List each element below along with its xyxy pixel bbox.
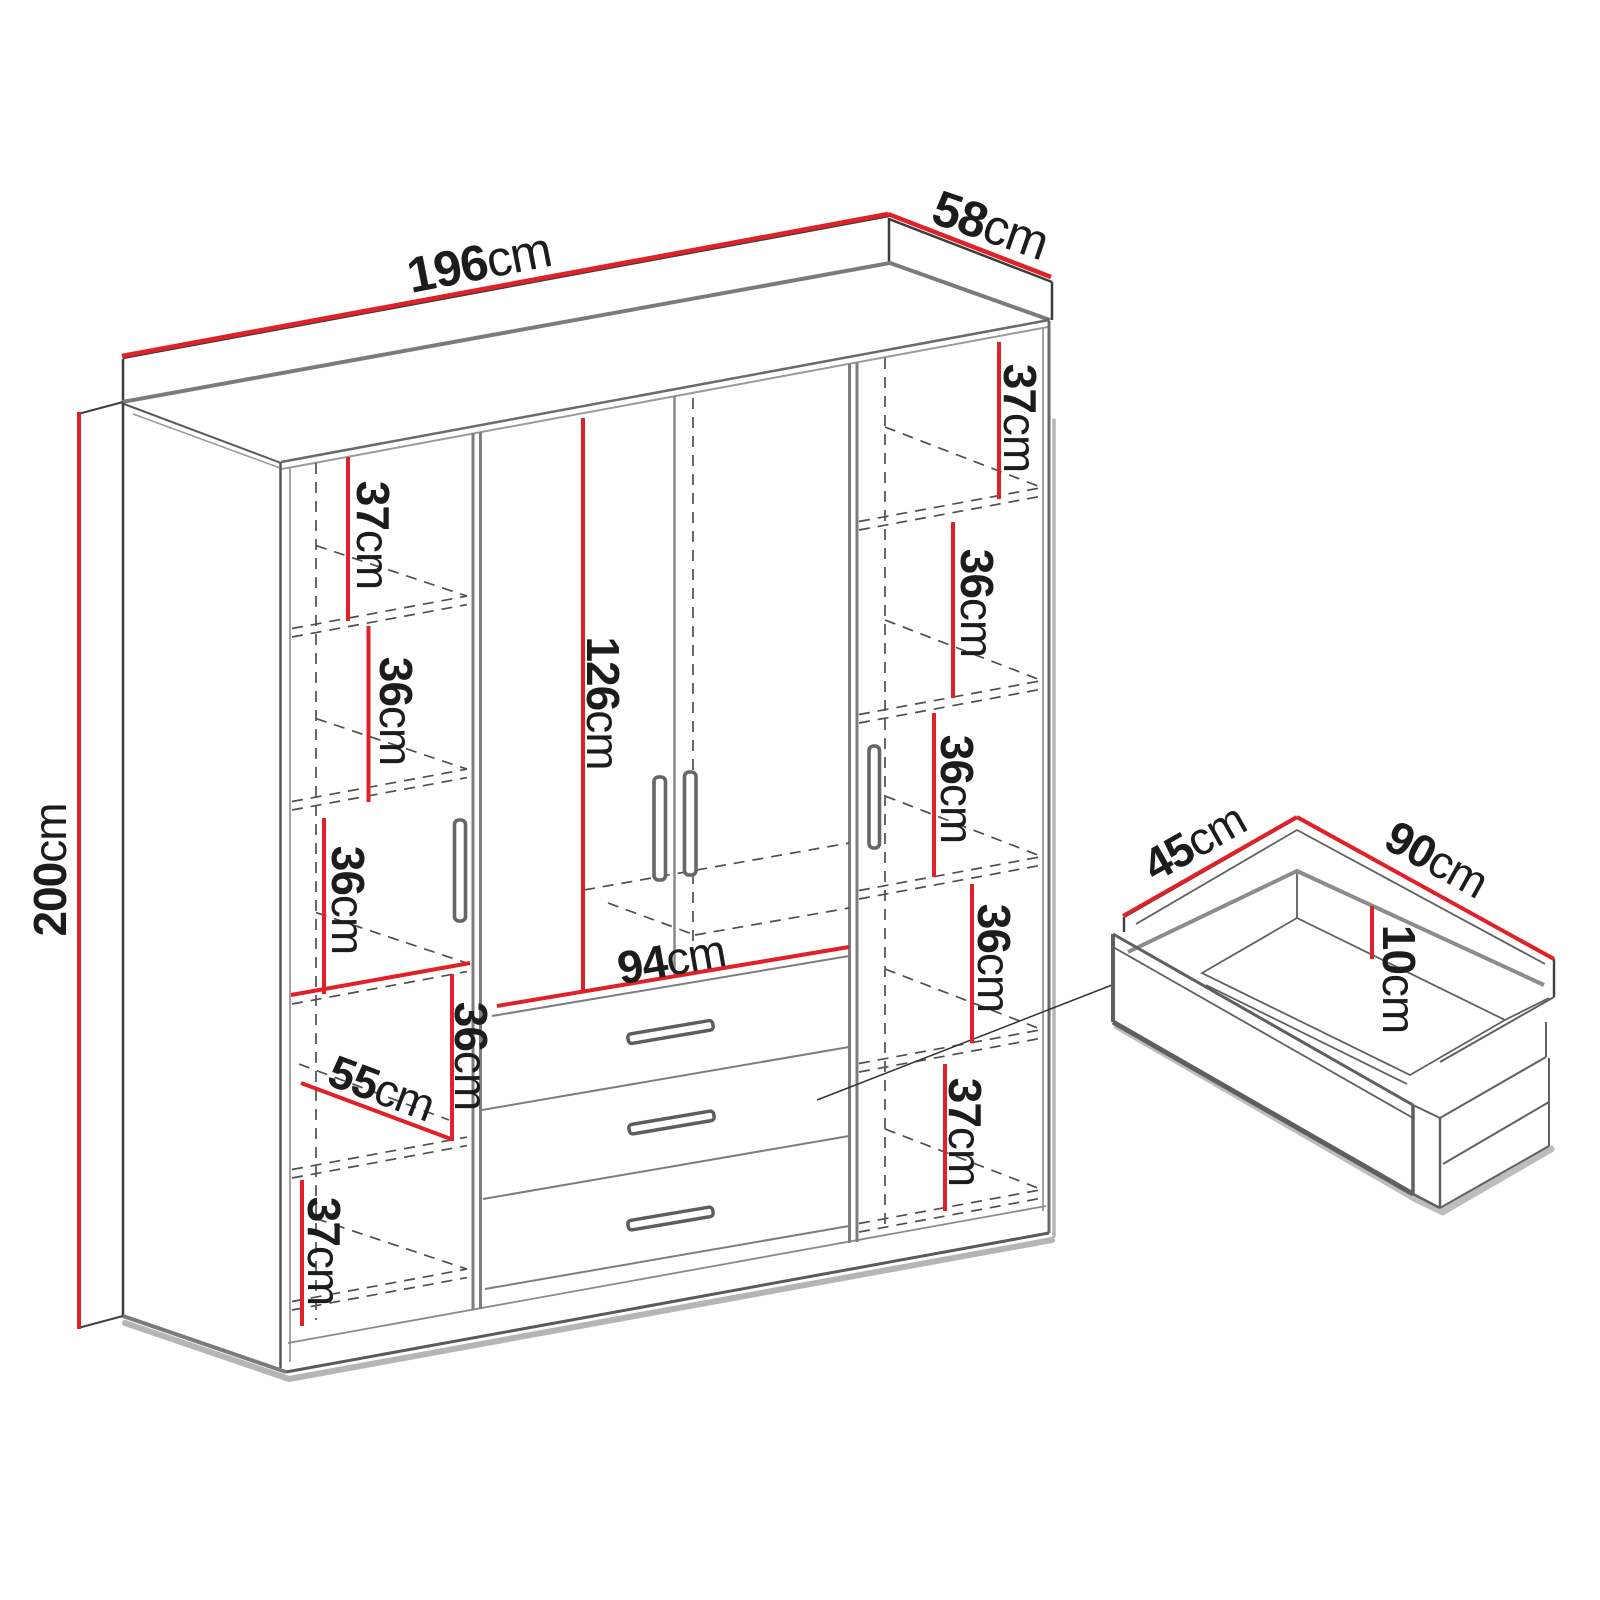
svg-text:36cm: 36cm: [931, 735, 983, 844]
svg-text:36cm: 36cm: [322, 846, 374, 955]
svg-text:10cm: 10cm: [1373, 925, 1425, 1034]
svg-text:36cm: 36cm: [968, 904, 1020, 1013]
svg-text:36cm: 36cm: [951, 549, 1003, 658]
svg-text:126cm: 126cm: [577, 636, 629, 769]
svg-text:36cm: 36cm: [445, 1002, 497, 1111]
svg-text:37cm: 37cm: [298, 1197, 350, 1306]
svg-text:36cm: 36cm: [370, 657, 422, 766]
svg-text:37cm: 37cm: [939, 1078, 991, 1187]
svg-text:200cm: 200cm: [24, 803, 76, 936]
svg-text:37cm: 37cm: [347, 481, 399, 590]
svg-text:37cm: 37cm: [994, 364, 1046, 473]
